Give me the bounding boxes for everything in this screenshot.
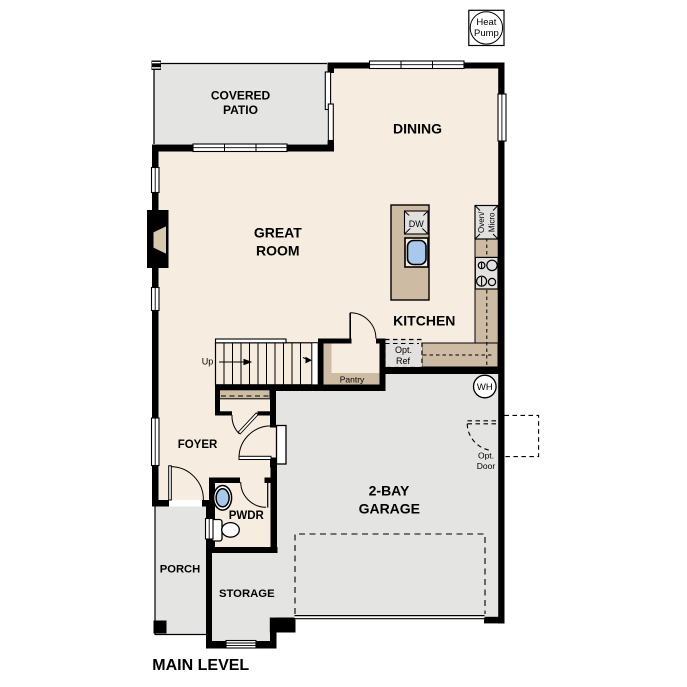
svg-text:Ref: Ref (396, 356, 411, 366)
svg-text:Opt.: Opt. (395, 345, 412, 355)
svg-text:KITCHEN: KITCHEN (393, 313, 455, 329)
svg-text:Pump: Pump (474, 28, 499, 39)
svg-text:2-BAY: 2-BAY (369, 483, 410, 499)
svg-text:GARAGE: GARAGE (359, 501, 420, 517)
svg-text:Up: Up (202, 357, 214, 367)
svg-text:Door: Door (477, 461, 496, 471)
svg-text:GREAT: GREAT (254, 225, 302, 241)
svg-text:FOYER: FOYER (178, 439, 218, 451)
svg-text:WH: WH (477, 382, 493, 393)
svg-text:DW: DW (409, 219, 424, 229)
svg-text:Opt.: Opt. (478, 451, 494, 461)
svg-text:MAIN LEVEL: MAIN LEVEL (152, 657, 249, 674)
svg-text:DINING: DINING (393, 121, 442, 137)
svg-text:Heat: Heat (476, 17, 496, 28)
svg-text:PWDR: PWDR (229, 510, 265, 522)
svg-text:STORAGE: STORAGE (219, 588, 275, 600)
svg-text:COVERED: COVERED (211, 89, 271, 103)
svg-text:Micro: Micro (488, 212, 497, 232)
svg-text:PATIO: PATIO (223, 103, 258, 117)
svg-text:PORCH: PORCH (160, 564, 200, 576)
svg-text:Pantry: Pantry (340, 375, 365, 385)
svg-text:ROOM: ROOM (256, 243, 300, 259)
svg-text:Oven/: Oven/ (477, 211, 486, 233)
